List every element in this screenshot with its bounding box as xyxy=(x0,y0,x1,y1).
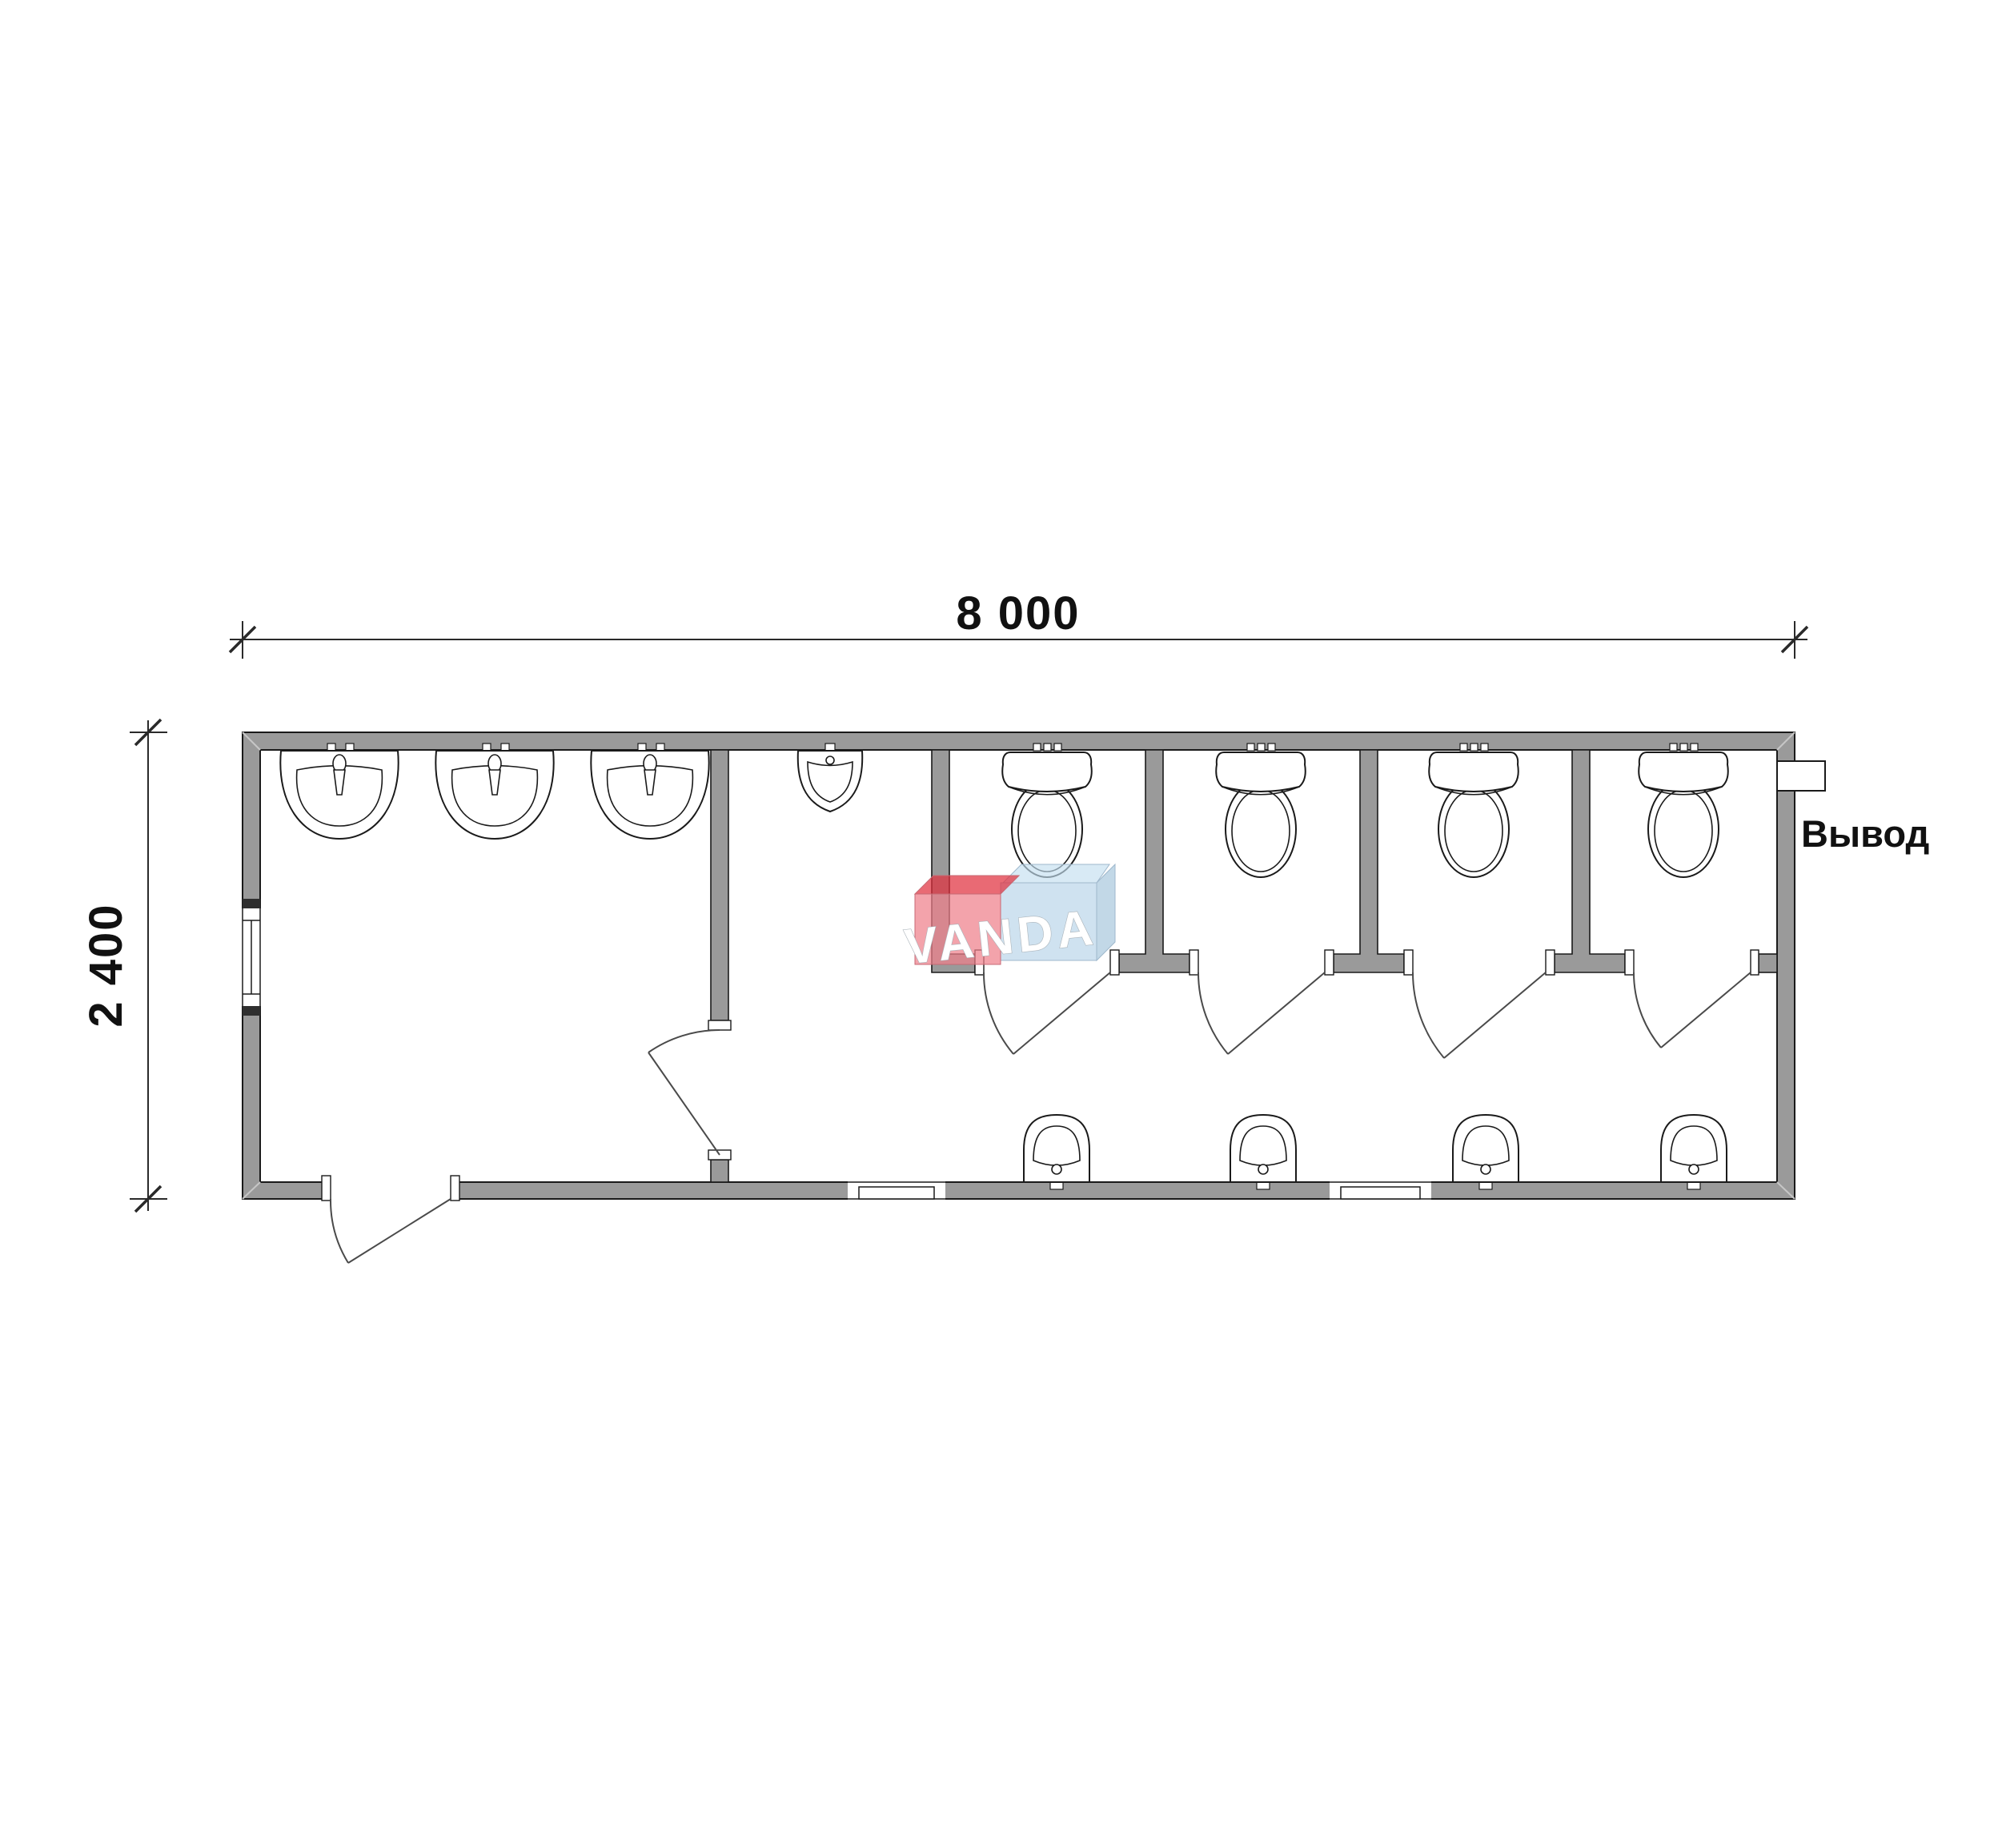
urinal xyxy=(798,744,862,812)
washroom-door-jamb-top xyxy=(708,1020,731,1030)
stall3-door xyxy=(1413,972,1546,1058)
floor-plan-canvas: 8 000 2 400 xyxy=(0,0,2014,1848)
height-dimension-label: 2 400 xyxy=(80,903,132,1027)
outlet-pipe xyxy=(1777,761,1825,791)
floor-plan-drawing: 8 000 2 400 xyxy=(0,0,2014,1848)
toilet-4 xyxy=(1639,744,1727,877)
window-left-sill xyxy=(243,1006,260,1016)
watermark-blue-top xyxy=(1003,864,1109,883)
window-left xyxy=(240,899,263,1016)
width-dimension-label: 8 000 xyxy=(956,587,1080,639)
stall4-door-jamb-left xyxy=(1625,950,1634,975)
stall4-door-jamb-right xyxy=(1751,950,1759,975)
washroom-partition-upper xyxy=(711,750,728,1020)
toilet-3 xyxy=(1429,744,1518,877)
entrance-door xyxy=(331,1199,451,1263)
left-dimension: 2 400 xyxy=(80,720,167,1212)
stall1-door-jamb-right xyxy=(1110,950,1119,975)
window-left-head xyxy=(243,899,260,908)
washbasin-2 xyxy=(435,744,553,839)
hand-sink-2 xyxy=(1230,1115,1296,1189)
entrance-opening xyxy=(331,1175,451,1202)
stall-partition-3 xyxy=(1334,750,1404,972)
hand-sink-1 xyxy=(1024,1115,1089,1189)
hand-sink-3 xyxy=(1453,1115,1519,1189)
entrance-jamb-right xyxy=(451,1176,459,1201)
stall3-door-jamb-left xyxy=(1404,950,1413,975)
watermark-red-top xyxy=(915,876,1019,894)
stall2-door-jamb-right xyxy=(1325,950,1334,975)
fixtures xyxy=(280,744,1727,1189)
stall3-door-jamb-right xyxy=(1546,950,1555,975)
stall2-door-jamb-left xyxy=(1190,950,1198,975)
toilet-1 xyxy=(1002,744,1091,877)
washroom-partition-lower-stub xyxy=(711,1160,728,1182)
hand-sink-4 xyxy=(1661,1115,1727,1189)
stall-partition-4 xyxy=(1555,750,1625,972)
stall-front-stub-right xyxy=(1759,954,1777,972)
stall1-door xyxy=(984,972,1110,1054)
top-dimension: 8 000 xyxy=(230,587,1807,659)
window-bottom-1 xyxy=(848,1177,945,1202)
washbasin-3 xyxy=(591,744,708,839)
vanda-watermark: VANDA xyxy=(902,864,1115,975)
washbasin-1 xyxy=(280,744,398,839)
stall4-door xyxy=(1634,972,1751,1048)
washroom-door xyxy=(648,1030,720,1155)
stall2-door xyxy=(1198,972,1325,1054)
entrance-jamb-left xyxy=(322,1176,331,1201)
toilet-2 xyxy=(1216,744,1305,877)
stall-partition-2 xyxy=(1119,750,1190,972)
window-bottom-2 xyxy=(1330,1177,1431,1202)
outlet-label: Вывод xyxy=(1801,812,1929,855)
